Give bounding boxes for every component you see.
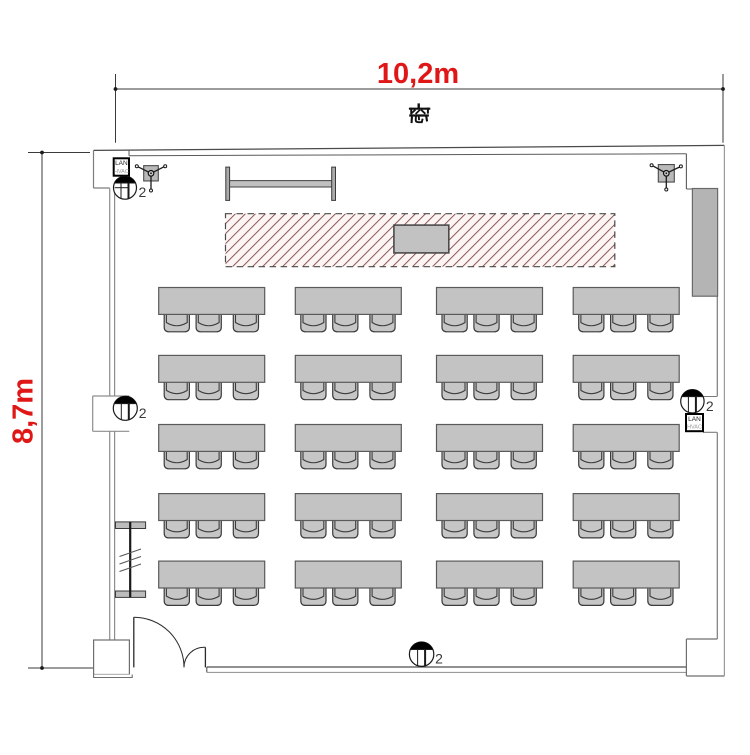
svg-text:2: 2 [435, 651, 443, 667]
svg-text:HVAC: HVAC [687, 425, 702, 431]
svg-text:HVAC: HVAC [114, 169, 129, 175]
svg-text:2: 2 [139, 184, 147, 200]
svg-text:LAN: LAN [688, 416, 701, 423]
svg-text:10,2m: 10,2m [377, 58, 459, 90]
svg-text:8,7m: 8,7m [8, 378, 40, 444]
svg-text:2: 2 [139, 405, 147, 421]
svg-text:2: 2 [706, 398, 714, 414]
svg-text:LAN: LAN [115, 160, 128, 167]
